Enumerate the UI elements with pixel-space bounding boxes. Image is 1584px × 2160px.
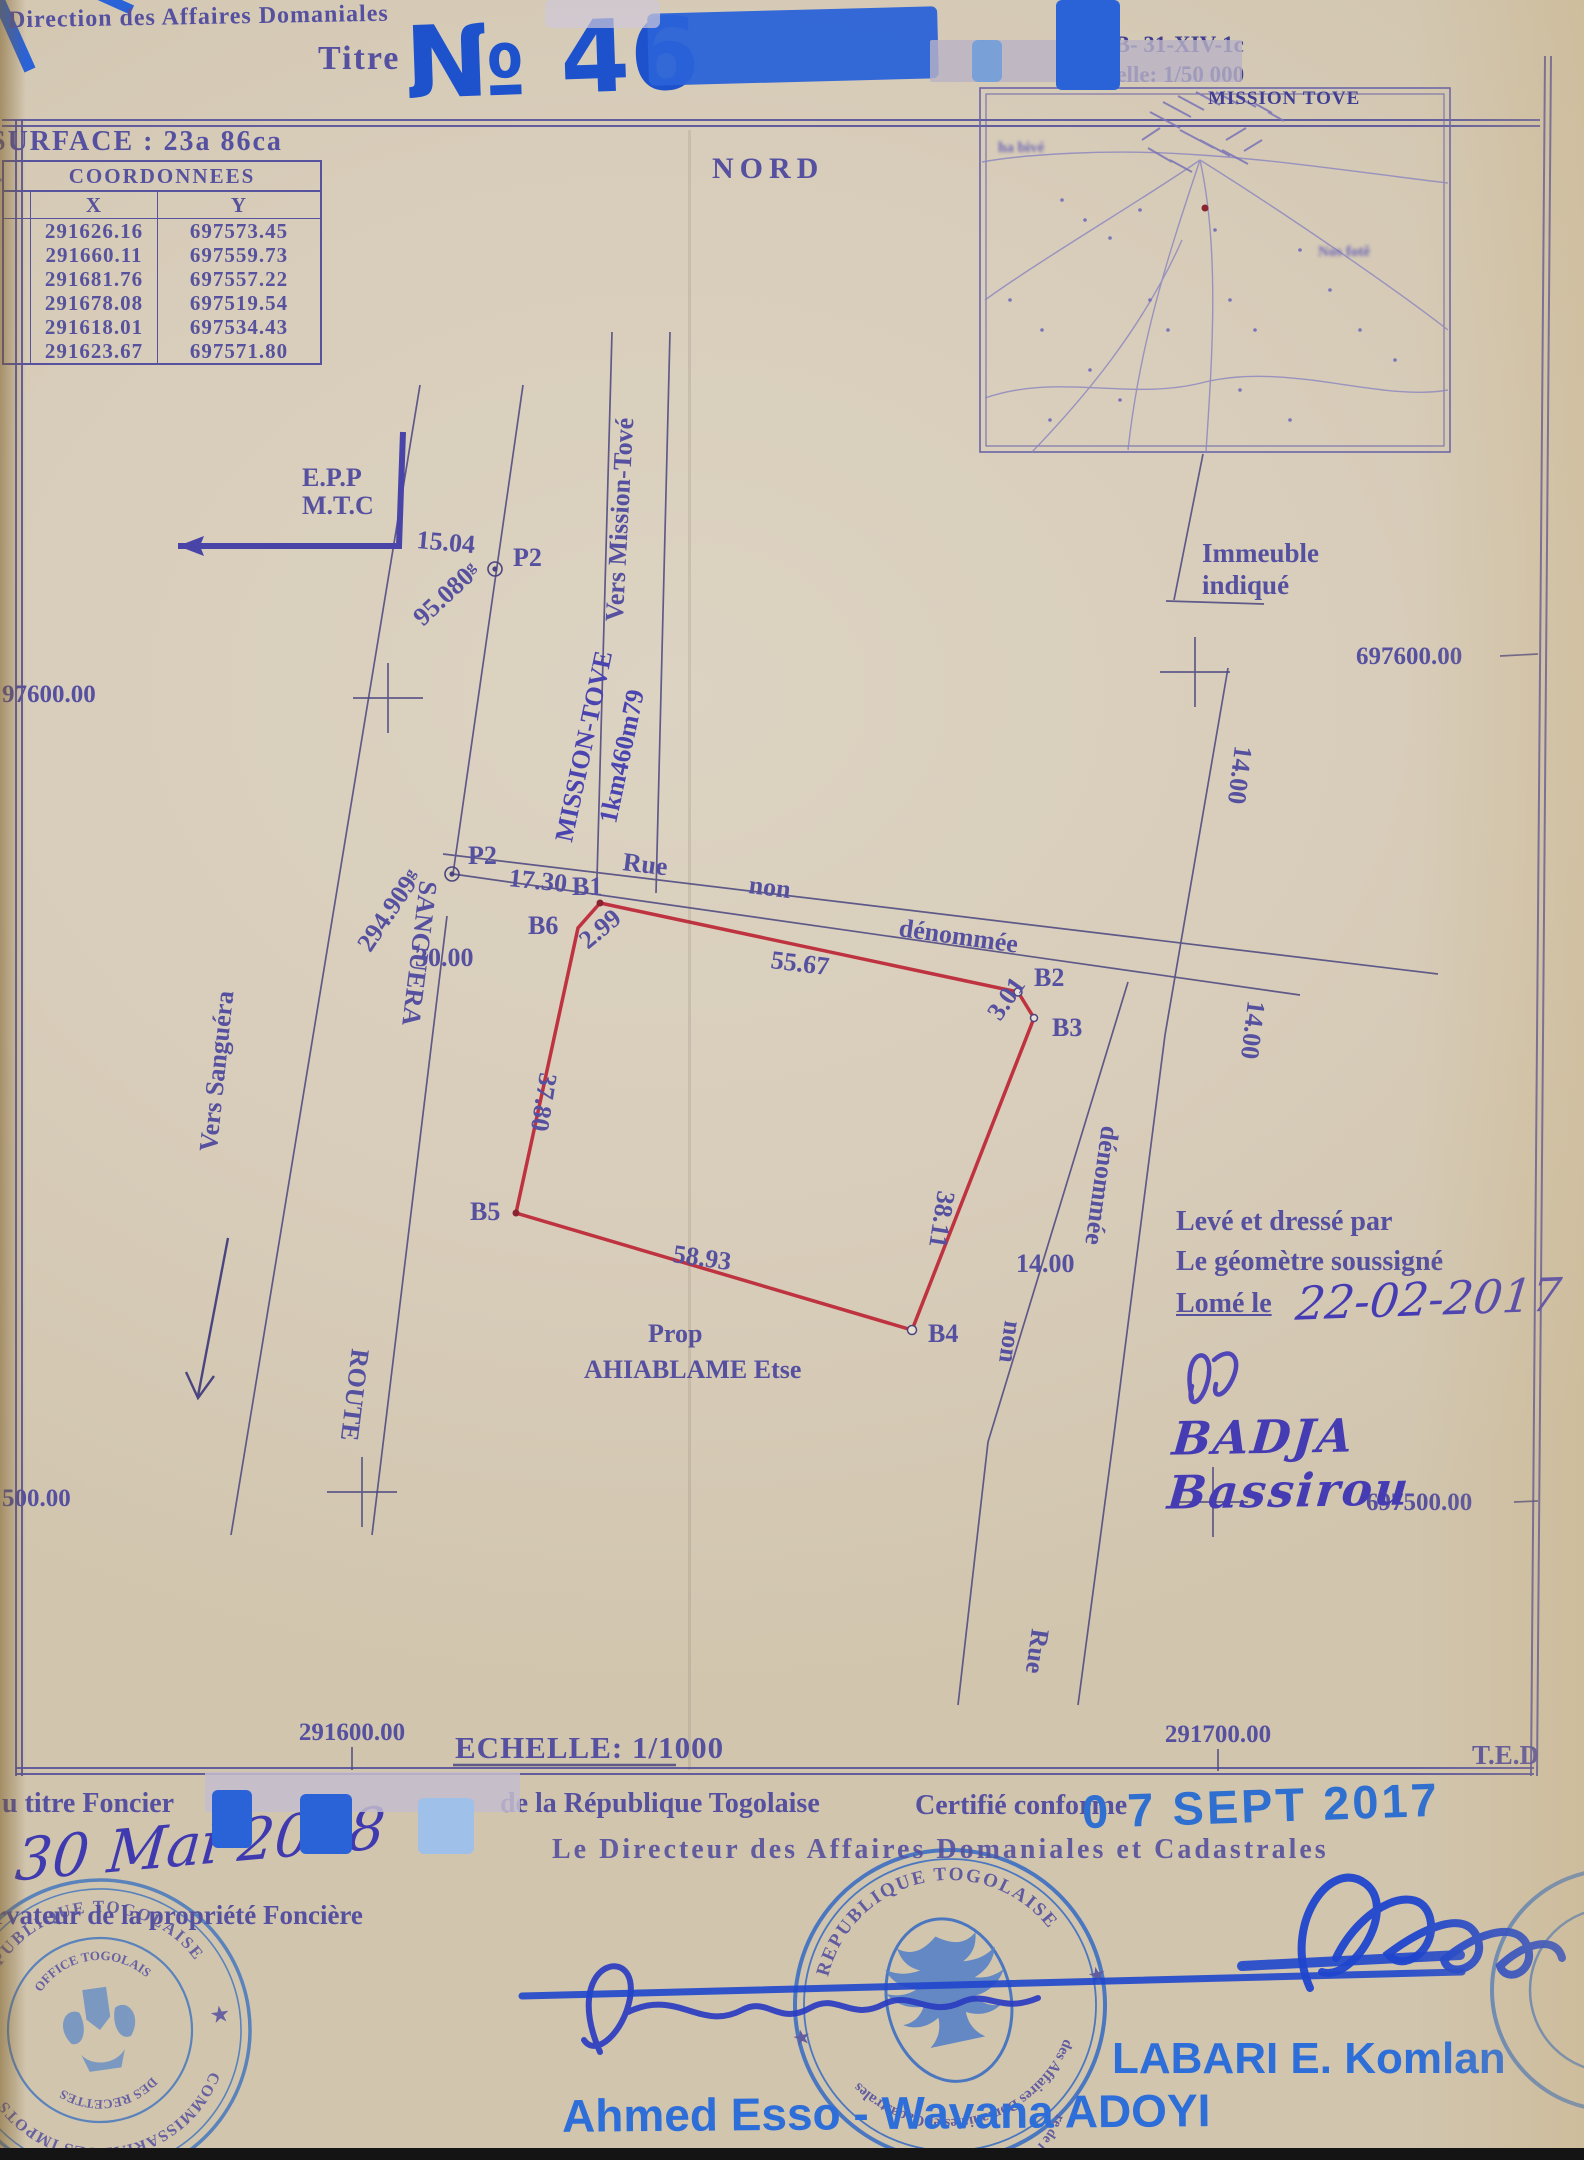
label-d3811: 38.11 — [923, 1189, 961, 1250]
coordinates-table-title: COORDONNEES — [4, 162, 320, 192]
grid-crosses — [327, 637, 1248, 1537]
label-b6: B6 — [528, 911, 558, 940]
parcel-location-dot — [1202, 205, 1209, 212]
label-non-top: non — [747, 870, 793, 904]
label-mtc: M.T.C — [302, 491, 374, 520]
surveyor-line1: Levé et dressé par — [1176, 1206, 1392, 1238]
label-epp: E.P.P — [302, 463, 362, 492]
label-d1400-b: 14.00 — [1235, 999, 1271, 1061]
plan-scale: ECHELLE: 1/1000 — [455, 1730, 724, 1765]
col-y: Y — [158, 192, 320, 218]
label-b2: B2 — [1034, 963, 1064, 992]
table-row: 291681.76697557.22 — [4, 267, 320, 291]
paper-crease — [688, 130, 691, 1770]
inset-village: MISSION TOVE — [1208, 88, 1360, 109]
label-vers-mission: Vers Mission-Tové — [600, 417, 640, 622]
grid-x-left: 291600.00 — [299, 1719, 405, 1746]
cell-x: 291678.08 — [31, 291, 158, 315]
header-titre-label: Titre — [318, 40, 400, 78]
footer-republique: de la République Togolaise — [500, 1788, 820, 1820]
label-p2-upper: P2 — [513, 543, 542, 572]
table-row: 291623.67697571.80 — [4, 339, 320, 363]
stamp-left-emblem — [58, 1983, 141, 2074]
cell-y: 697534.43 — [158, 315, 320, 339]
cell-y: 697573.45 — [158, 219, 320, 243]
surveyor-line3: Lomé le — [1176, 1288, 1272, 1320]
footer-directeur: Le Directeur des Affaires Domaniales et … — [552, 1834, 1329, 1866]
redaction-footer-paleblue — [418, 1798, 474, 1854]
cell-x: 291618.01 — [31, 315, 158, 339]
vers-sanguera-arrow — [186, 1238, 228, 1398]
label-b3: B3 — [1052, 1013, 1082, 1042]
grid-x-right: 291700.00 — [1165, 1721, 1271, 1748]
label-denommee-right: dénommée — [1079, 1124, 1124, 1247]
stamp-left-inner-bottom: DES RECETTES — [55, 2073, 163, 2118]
label-denommee-top: dénommée — [897, 913, 1020, 958]
footer-signer-left-name: Ahmed Esso - Wavana ADOYI — [562, 2083, 1211, 2143]
p2-points — [445, 562, 502, 881]
label-d1730: 17.30 — [507, 863, 568, 898]
label-non-right: non — [993, 1319, 1028, 1365]
scanned-land-title-plan: E.P.P M.T.C 15.04 95.080ᵍ P2 P2 17.30 B1… — [0, 0, 1584, 2160]
label-d1400-c: 14.00 — [1016, 1249, 1075, 1278]
paper-edge-right — [1414, 0, 1584, 2160]
cell-y: 697519.54 — [158, 291, 320, 315]
label-d5567: 55.67 — [769, 945, 831, 981]
label-d1400-a: 14.00 — [1222, 744, 1258, 806]
cell-x: 291681.76 — [31, 267, 158, 291]
label-b5: B5 — [470, 1197, 500, 1226]
col-x: X — [31, 192, 158, 218]
table-row: 291626.16697573.45 — [4, 219, 320, 243]
svg-text:OFFICE TOGOLAIS: OFFICE TOGOLAIS — [27, 1940, 156, 1996]
cell-x: 291626.16 — [31, 219, 158, 243]
label-rue-right: Rue — [1020, 1627, 1055, 1675]
cell-y: 697571.80 — [158, 339, 320, 363]
label-prop: Prop — [648, 1319, 702, 1348]
stamp-left-star-r: ★ — [210, 2003, 231, 2027]
cell-y: 697557.22 — [158, 267, 320, 291]
cell-x: 291623.67 — [31, 339, 158, 363]
header-nord: NORD — [712, 152, 824, 186]
label-d5893: 58.93 — [671, 1239, 733, 1276]
inset-label-right: Nos fotê — [1318, 244, 1370, 261]
label-d3780: 37.80 — [525, 1071, 563, 1133]
label-route: ROUTE — [335, 1347, 375, 1442]
svg-text:DES RECETTES: DES RECETTES — [55, 2073, 163, 2118]
cell-y: 697559.73 — [158, 243, 320, 267]
redaction-title-number — [647, 6, 939, 86]
cell-x: 291660.11 — [31, 243, 158, 267]
footer-conservateur: rvateur de la propriété Foncière — [0, 1900, 363, 1931]
redaction-header-patch — [545, 0, 660, 28]
label-bearing95: 95.080ᵍ — [407, 556, 485, 631]
redaction-footer-blue2 — [300, 1794, 352, 1854]
label-rue-top: Rue — [621, 847, 669, 881]
label-vers-sanguera: Vers Sanguéra — [194, 989, 240, 1153]
label-b1: B1 — [572, 872, 602, 901]
header-surface: SURFACE : 23a 86ca — [0, 126, 283, 158]
label-d299: 2.99 — [573, 903, 626, 954]
table-row: 291618.01697534.43 — [4, 315, 320, 339]
label-b4: B4 — [928, 1319, 958, 1348]
stamp-left-inner-top: OFFICE TOGOLAIS — [27, 1940, 156, 1996]
paper-edge-left — [0, 0, 26, 2160]
redaction-blue-block — [1056, 0, 1120, 90]
inset-label-left: ha bivé — [998, 140, 1044, 157]
stamp-center-star-l: ★ — [792, 2026, 813, 2049]
scan-edge-bottom — [0, 2148, 1584, 2160]
label-d301: 3.01 — [981, 972, 1031, 1026]
coordinates-table-header-row: X Y — [4, 192, 320, 219]
label-indique: indiqué — [1202, 570, 1289, 600]
label-immeuble: Immeuble — [1202, 538, 1319, 568]
label-d1504: 15.04 — [415, 525, 476, 559]
table-row: 291660.11697559.73 — [4, 243, 320, 267]
label-p2-lower: P2 — [468, 841, 497, 870]
table-row: 291678.08697519.54 — [4, 291, 320, 315]
redaction-footer-blue1 — [212, 1790, 252, 1848]
redaction-small-blue — [972, 40, 1002, 82]
coordinates-table: COORDONNEES X Y 291626.16697573.45 29166… — [2, 160, 322, 365]
label-owner: AHIABLAME Etse — [584, 1355, 801, 1384]
